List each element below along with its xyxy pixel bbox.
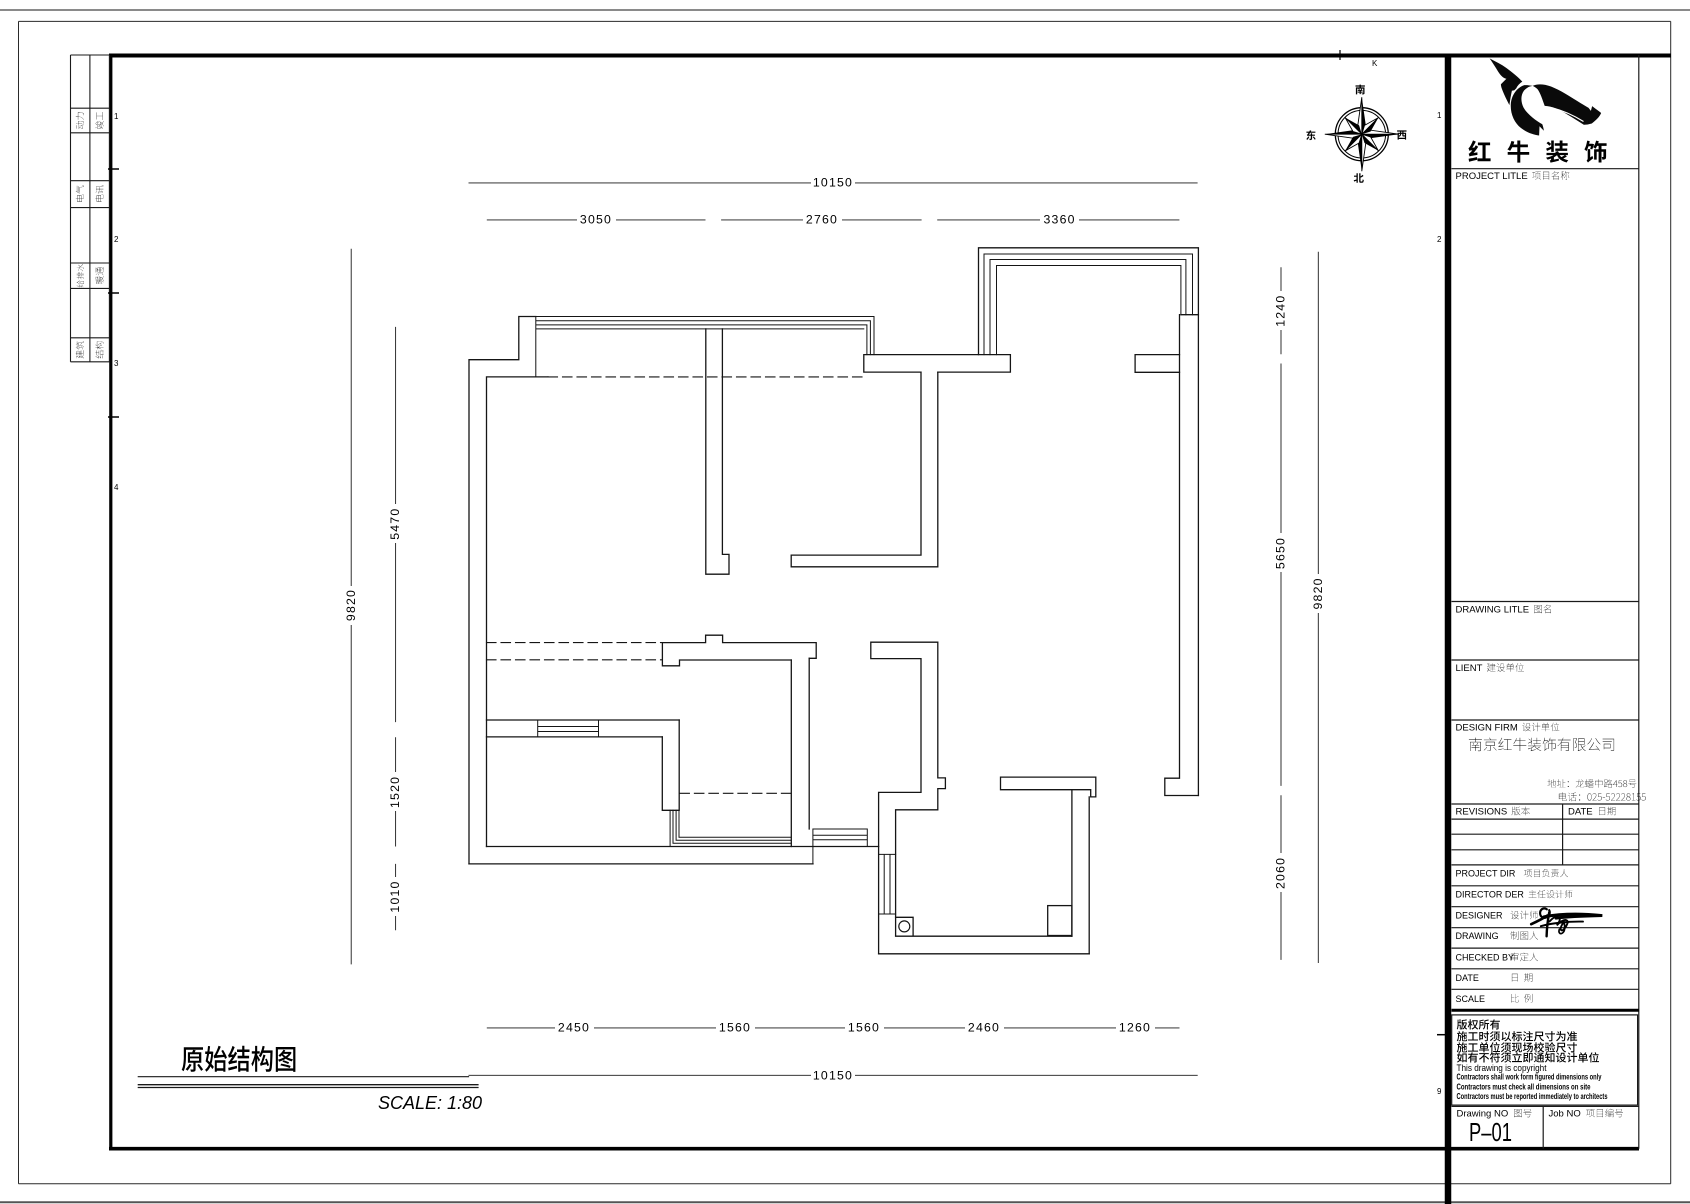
svg-text:1: 1 xyxy=(114,112,119,121)
svg-text:CHECKED BY: CHECKED BY xyxy=(1456,953,1515,963)
svg-text:2060: 2060 xyxy=(1274,857,1288,889)
svg-text:Contractors shall work form fi: Contractors shall work form figured dime… xyxy=(1457,1072,1602,1081)
svg-text:Contractors must be reported i: Contractors must be reported immediately… xyxy=(1457,1092,1608,1101)
svg-text:5470: 5470 xyxy=(388,508,402,540)
svg-text:3050: 3050 xyxy=(580,213,612,227)
svg-text:9820: 9820 xyxy=(1311,577,1325,609)
svg-text:Contractors must check all dim: Contractors must check all dimensions on… xyxy=(1457,1082,1591,1091)
svg-text:Job NO: Job NO xyxy=(1549,1109,1581,1120)
svg-text:DESIGNER: DESIGNER xyxy=(1456,911,1504,921)
svg-text:DIRECTOR DER: DIRECTOR DER xyxy=(1456,890,1525,900)
svg-text:9820: 9820 xyxy=(344,589,358,621)
svg-text:SCALE: 1:80: SCALE: 1:80 xyxy=(378,1093,482,1113)
svg-text:10150: 10150 xyxy=(813,176,853,190)
svg-text:2: 2 xyxy=(114,235,119,244)
svg-text:REVISIONS: REVISIONS xyxy=(1456,807,1508,818)
svg-text:4: 4 xyxy=(114,483,119,492)
svg-text:3: 3 xyxy=(114,359,119,368)
svg-text:5650: 5650 xyxy=(1274,537,1288,569)
svg-text:DRAWING: DRAWING xyxy=(1456,931,1499,941)
svg-text:9: 9 xyxy=(1437,1087,1442,1096)
svg-text:LIENT: LIENT xyxy=(1456,663,1483,674)
svg-text:2760: 2760 xyxy=(806,213,838,227)
svg-text:DRAWING LITLE: DRAWING LITLE xyxy=(1456,605,1530,616)
svg-text:2: 2 xyxy=(1437,235,1442,244)
svg-text:1: 1 xyxy=(1437,111,1442,120)
svg-text:DESIGN FIRM: DESIGN FIRM xyxy=(1456,723,1518,734)
svg-text:10150: 10150 xyxy=(813,1068,853,1082)
svg-text:1260: 1260 xyxy=(1119,1021,1151,1035)
svg-text:1560: 1560 xyxy=(719,1021,751,1035)
svg-text:P–01: P–01 xyxy=(1469,1117,1512,1147)
svg-text:1010: 1010 xyxy=(388,880,402,912)
svg-text:PROJECT LITLE: PROJECT LITLE xyxy=(1456,171,1528,182)
svg-text:2450: 2450 xyxy=(558,1021,590,1035)
svg-text:SCALE: SCALE xyxy=(1456,994,1486,1004)
svg-text:K: K xyxy=(1372,59,1378,68)
svg-text:1560: 1560 xyxy=(848,1021,880,1035)
svg-text:2460: 2460 xyxy=(968,1021,1000,1035)
svg-text:1520: 1520 xyxy=(388,776,402,808)
svg-text:DATE: DATE xyxy=(1568,807,1593,818)
svg-text:1240: 1240 xyxy=(1274,295,1288,327)
svg-text:3360: 3360 xyxy=(1044,213,1076,227)
svg-text:DATE: DATE xyxy=(1456,973,1479,983)
svg-text:PROJECT DIR: PROJECT DIR xyxy=(1456,869,1516,879)
